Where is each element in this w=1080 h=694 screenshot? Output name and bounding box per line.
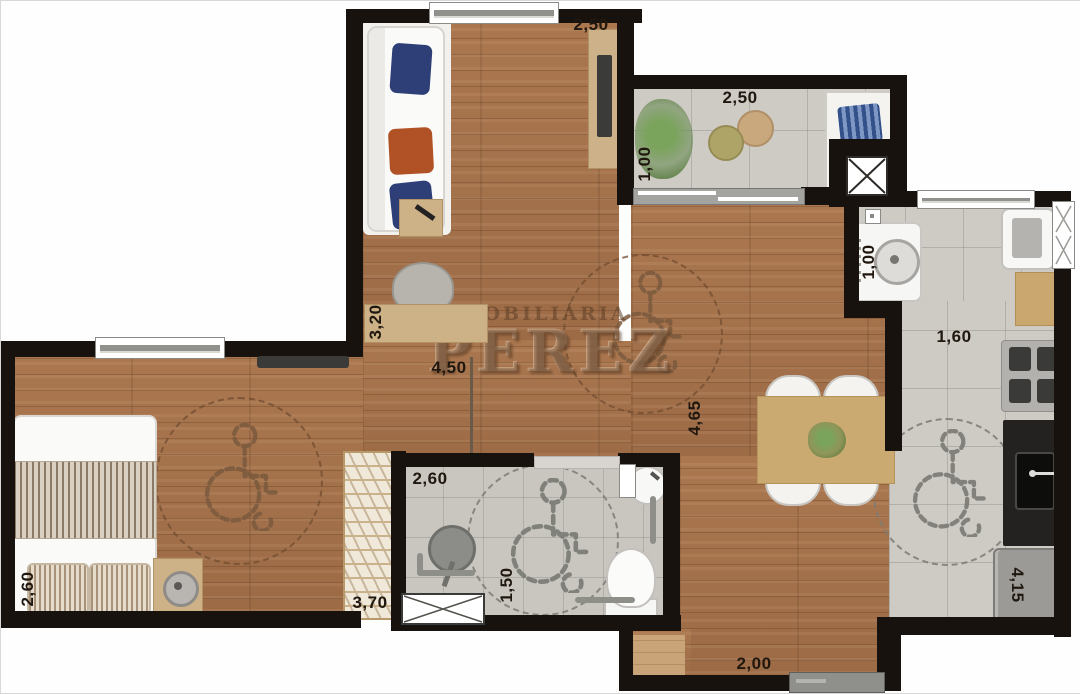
wheelchair-icon [191, 423, 283, 531]
dimension-label: 4,50 [431, 358, 466, 378]
grab-bar [575, 597, 635, 603]
sofa-cushion-blue [389, 43, 432, 96]
wall [844, 205, 859, 307]
entry-mat [633, 635, 685, 677]
sliding-pane [638, 191, 716, 195]
dimension-label: 1,50 [497, 567, 517, 602]
dining-table [757, 396, 895, 484]
dimension-label: 2,00 [736, 654, 771, 674]
tv-bedroom [257, 356, 349, 368]
shower-box [401, 593, 485, 625]
nightstand [153, 558, 203, 615]
tv [597, 55, 612, 137]
counter-sink [1015, 452, 1055, 510]
pouf [708, 125, 744, 161]
dimension-label: 1,00 [859, 244, 879, 279]
bathroom-door-threshold [534, 456, 620, 469]
dimension-label: 2,60 [18, 571, 38, 606]
grab-bar [650, 496, 656, 544]
door-track [470, 357, 473, 455]
washer-drum-center [890, 255, 899, 264]
wall [1, 341, 15, 627]
wall [617, 9, 634, 205]
table-plant [808, 422, 846, 458]
sofa-cushion-rust [388, 127, 434, 175]
wall [1, 611, 361, 628]
window [95, 337, 225, 359]
sliding-pane [718, 197, 798, 201]
counter [1003, 420, 1061, 546]
dimension-label: 3,20 [366, 304, 386, 339]
lamp [163, 571, 199, 607]
wheelchair-icon [897, 429, 993, 537]
faucet-base [1029, 470, 1036, 477]
shaft-x-box [846, 156, 888, 196]
kitchen-sink [1001, 208, 1055, 270]
kitchen-sink-basin [1012, 218, 1042, 258]
louver-window [1052, 201, 1075, 269]
grab-bar [417, 553, 423, 575]
dimension-label: 4,15 [1007, 567, 1027, 602]
wall [663, 453, 680, 625]
dimension-label: 4,65 [685, 400, 705, 435]
wall [346, 9, 363, 357]
dimension-label: 2,60 [412, 469, 447, 489]
dimension-label: 2,50 [573, 15, 608, 35]
dimension-label: 1,60 [936, 327, 971, 347]
lamp-center [174, 582, 182, 590]
gas-point [865, 209, 881, 224]
entry-door [789, 672, 885, 693]
side-table [399, 199, 443, 237]
dimension-label: 1,00 [635, 146, 655, 181]
wall [885, 301, 902, 451]
dimension-label: 3,70 [352, 593, 387, 613]
burner [1009, 347, 1031, 371]
bed-duvet [13, 461, 157, 539]
sofa-backrest [369, 28, 385, 230]
wall [391, 453, 534, 467]
burner [1009, 379, 1031, 403]
wall [885, 617, 1071, 635]
bed-pillow [89, 563, 151, 615]
wall [627, 75, 907, 89]
window [917, 190, 1035, 209]
sink-faucet [650, 471, 660, 480]
bathroom-door-leaf [619, 464, 636, 498]
dimension-label: 2,50 [722, 88, 757, 108]
sliding-door [633, 188, 805, 205]
grab-bar [417, 570, 475, 576]
floor-plan: IMOBILIÁRIA PEREZ [0, 0, 1080, 694]
remote [415, 204, 436, 221]
window [429, 2, 559, 24]
